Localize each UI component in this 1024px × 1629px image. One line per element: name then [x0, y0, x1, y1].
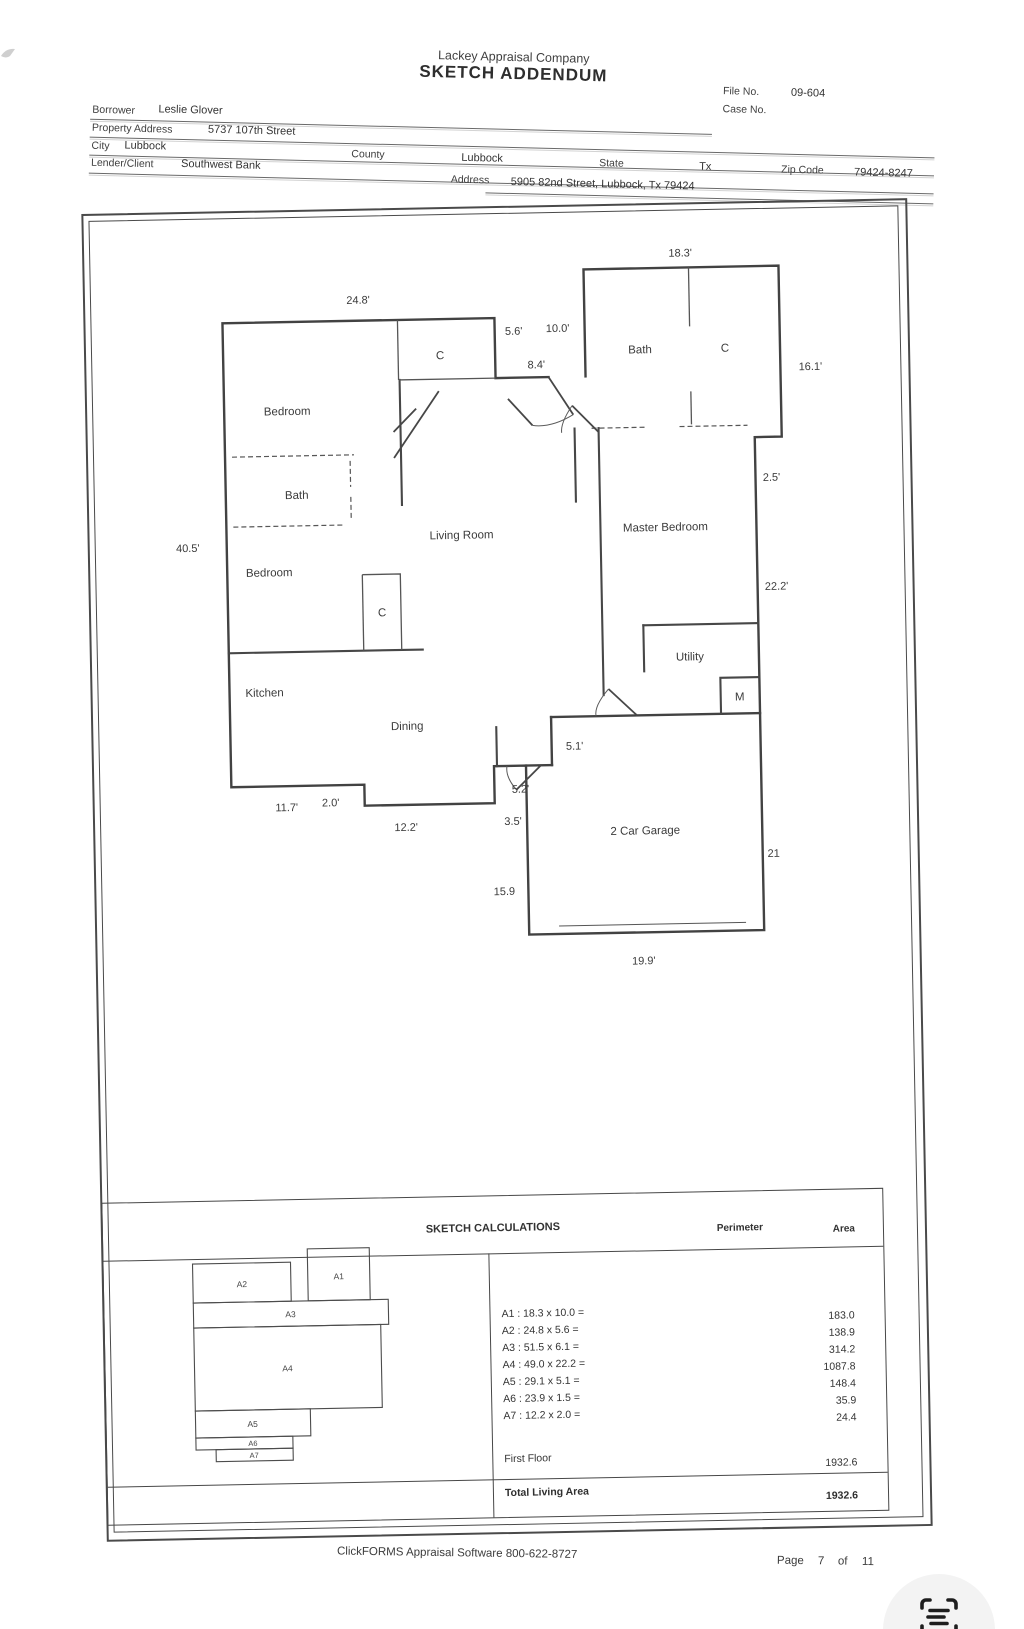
- of-label: of: [838, 1556, 848, 1568]
- footer-block: ClickFORMS Appraisal Software 800-622-87…: [0, 0, 1024, 1629]
- page-label: Page: [777, 1555, 804, 1567]
- page-number: 7: [818, 1555, 825, 1567]
- scan-text-icon: [916, 1594, 962, 1629]
- software-credit: ClickFORMS Appraisal Software 800-622-87…: [337, 1546, 577, 1561]
- scanned-sketch-addendum-page: Lackey Appraisal Company SKETCH ADDENDUM…: [0, 0, 1024, 1629]
- page-total: 11: [862, 1556, 874, 1568]
